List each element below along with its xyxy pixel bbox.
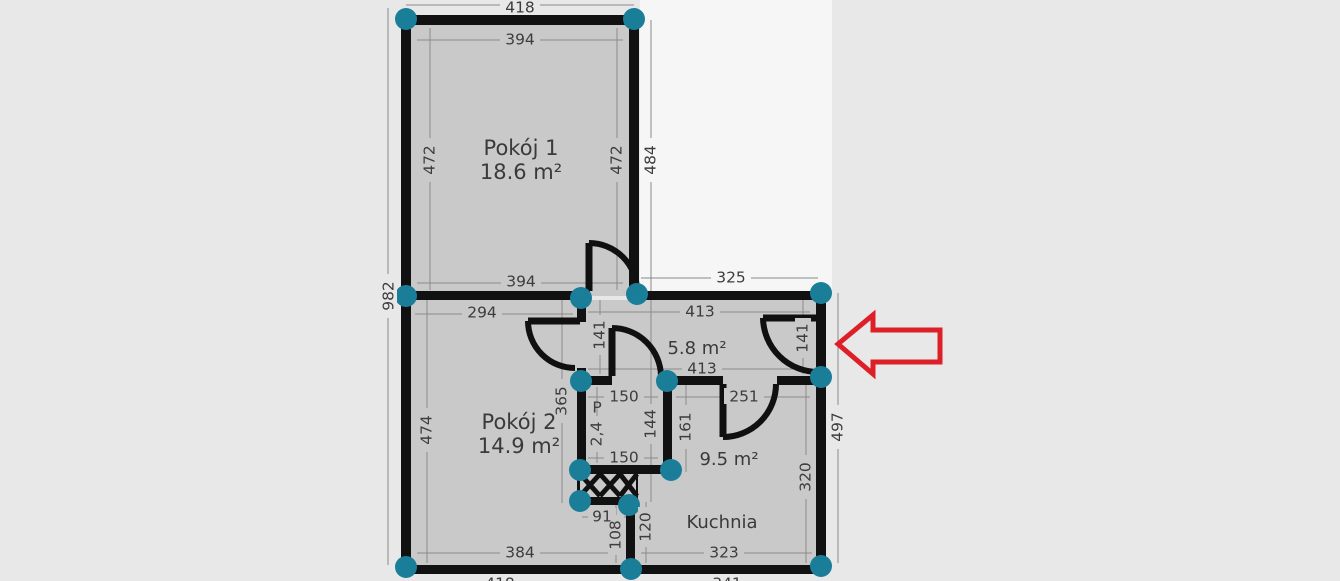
wall-node (569, 459, 591, 481)
wall-node (810, 555, 832, 577)
room1-area: 18.6 m² (480, 160, 562, 184)
dim-144: 144 (642, 409, 660, 439)
room1-name: Pokój 1 (484, 136, 559, 160)
hall-area: 5.8 m² (667, 338, 726, 359)
wall-node (395, 285, 417, 307)
dim-325: 325 (716, 269, 746, 287)
wall-middle-right (629, 291, 826, 300)
wall-node (570, 287, 592, 309)
wall-node (810, 282, 832, 304)
wall-node (395, 8, 417, 30)
dim-484: 484 (642, 145, 660, 175)
dim-394-bottom: 394 (506, 273, 536, 291)
wall-right (816, 291, 826, 574)
dim-413-upper: 413 (685, 303, 715, 321)
wall-node (810, 366, 832, 388)
dim-161: 161 (677, 412, 695, 442)
dim-150-top: 150 (609, 388, 639, 406)
room2-area: 14.9 m² (478, 434, 560, 458)
dim-982: 982 (380, 281, 398, 311)
wall-node (660, 459, 682, 481)
dim-497: 497 (829, 412, 847, 442)
dim-472-left: 472 (421, 145, 439, 175)
wall-bottom (401, 565, 826, 574)
dim-320: 320 (797, 462, 815, 492)
wall-node (626, 283, 648, 305)
dim-394-top: 394 (505, 31, 535, 49)
upper-right-light-zone (640, 0, 832, 292)
dim-294: 294 (467, 304, 497, 322)
wall-node (569, 490, 591, 512)
dim-251: 251 (729, 388, 759, 406)
dim-120: 120 (637, 512, 655, 542)
wall-node (620, 558, 642, 580)
dim-108: 108 (607, 520, 625, 550)
dim-418-bottom-clipped: 418 (485, 575, 515, 581)
dim-323: 323 (709, 544, 739, 562)
dim-474: 474 (418, 415, 436, 445)
floor-plan-drawing: 418 394 394 294 325 413 413 251 150 150 … (0, 0, 1340, 581)
dim-418-top: 418 (505, 0, 535, 17)
kitchen-name: Kuchnia (686, 512, 757, 533)
dim-341-bottom-clipped: 341 (712, 575, 742, 581)
wall-node (656, 370, 678, 392)
room2-name: Pokój 2 (482, 410, 557, 434)
wall-node (395, 556, 417, 578)
dim-413-lower: 413 (687, 360, 717, 378)
kitchen-area: 9.5 m² (699, 449, 758, 470)
wall-node (623, 8, 645, 30)
floor-plan-canvas: 418 394 394 294 325 413 413 251 150 150 … (0, 0, 1340, 581)
dim-141-right: 141 (794, 323, 812, 353)
small-room-label: P (592, 399, 601, 417)
dim-384: 384 (505, 544, 535, 562)
wall-room1-right (629, 15, 639, 300)
small-room-area: 2,4 (588, 422, 606, 447)
dim-472-right: 472 (608, 145, 626, 175)
dim-141-left: 141 (591, 320, 609, 350)
wall-top (401, 15, 639, 25)
wall-node (570, 370, 592, 392)
dim-150-bottom: 150 (609, 449, 639, 467)
wall-middle-left (401, 291, 590, 300)
